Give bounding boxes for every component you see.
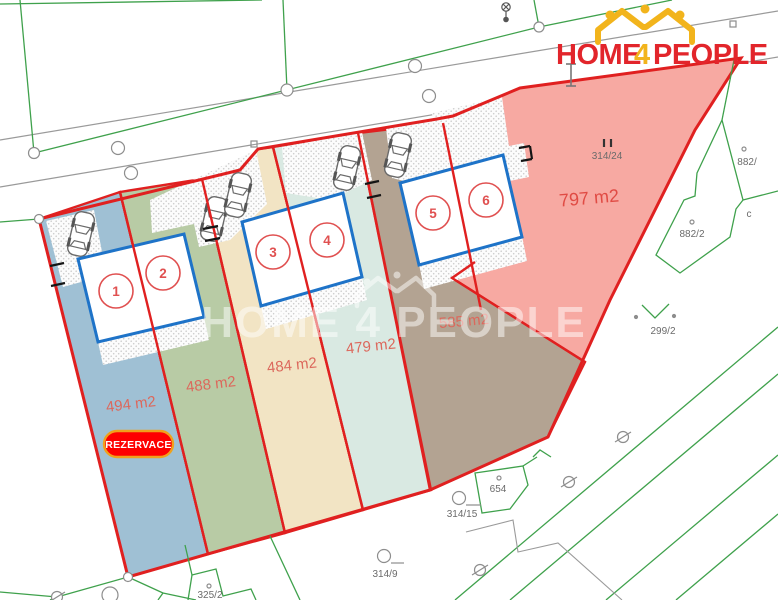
reservation-badge-label: REZERVACE [105,439,172,451]
parcel-label-314-24: 314/24 [592,151,623,162]
manhole-icon [125,167,138,180]
parcel-label-882-2: 882/2 [679,229,704,240]
parcel-label-325-2: 325/2 [197,590,222,600]
watermark-text: HOME 4 PEOPLE [201,298,586,347]
manhole-icon [409,60,422,73]
plot-number-1: 1 [112,284,120,299]
parcel-label-299-2: 299/2 [650,326,675,337]
manhole-icon [112,142,125,155]
parcel-label-c: c [747,209,752,220]
parcel-label-314-15: 314/15 [447,509,478,520]
manhole-icon [423,90,436,103]
plot-number-3: 3 [269,245,277,260]
logo-text-home: HOME [556,39,641,71]
logo-text-people: PEOPLE [653,39,768,71]
parcel-label-654: 654 [490,484,507,495]
site-plan-map: 1 2 3 4 5 6 494 m2 488 m2 484 m2 479 m2 … [0,0,778,600]
plot-number-2: 2 [159,266,167,281]
parcel-label-882: 882/ [737,157,757,168]
reservation-badge[interactable]: REZERVACE [104,431,173,457]
cadastral-map-svg: 1 2 3 4 5 6 494 m2 488 m2 484 m2 479 m2 … [0,0,778,600]
plot-number-4: 4 [323,233,331,248]
plot-number-5: 5 [429,206,437,221]
plot-number-6: 6 [482,193,490,208]
logo-text-4: 4 [634,39,650,71]
parcel-label-314-9: 314/9 [372,569,397,580]
